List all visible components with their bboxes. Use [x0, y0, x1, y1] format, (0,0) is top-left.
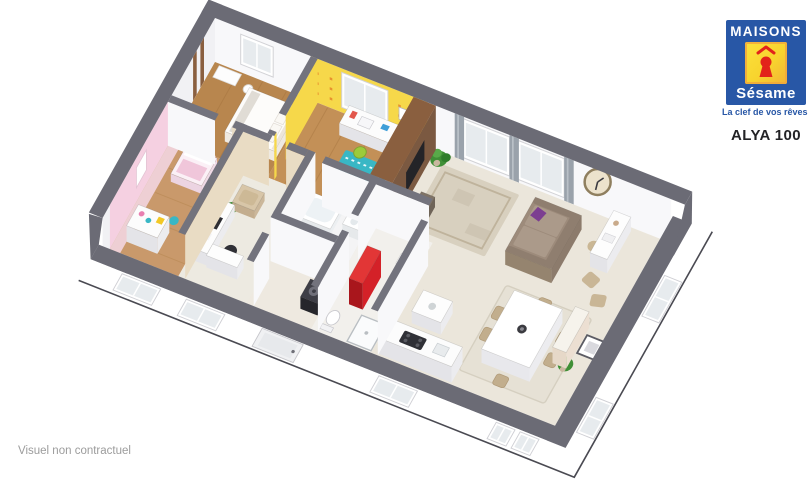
model-name-label: ALYA 100: [720, 127, 811, 144]
logo-maisons-text: MAISONS: [726, 24, 806, 39]
floorplan-3d-render: [0, 0, 811, 480]
disclaimer-text: Visuel non contractuel: [18, 445, 131, 457]
keyhole-badge: [745, 42, 787, 84]
maisons-sesame-logo: MAISONS Sésame: [726, 20, 806, 105]
logo-tagline: La clef de vos rêves: [722, 107, 811, 117]
keyhole-icon: [745, 42, 787, 84]
logo-sesame-text: Sésame: [726, 85, 806, 102]
floorplan-page: MAISONS Sésame La clef de vos rêves ALYA…: [0, 0, 811, 480]
